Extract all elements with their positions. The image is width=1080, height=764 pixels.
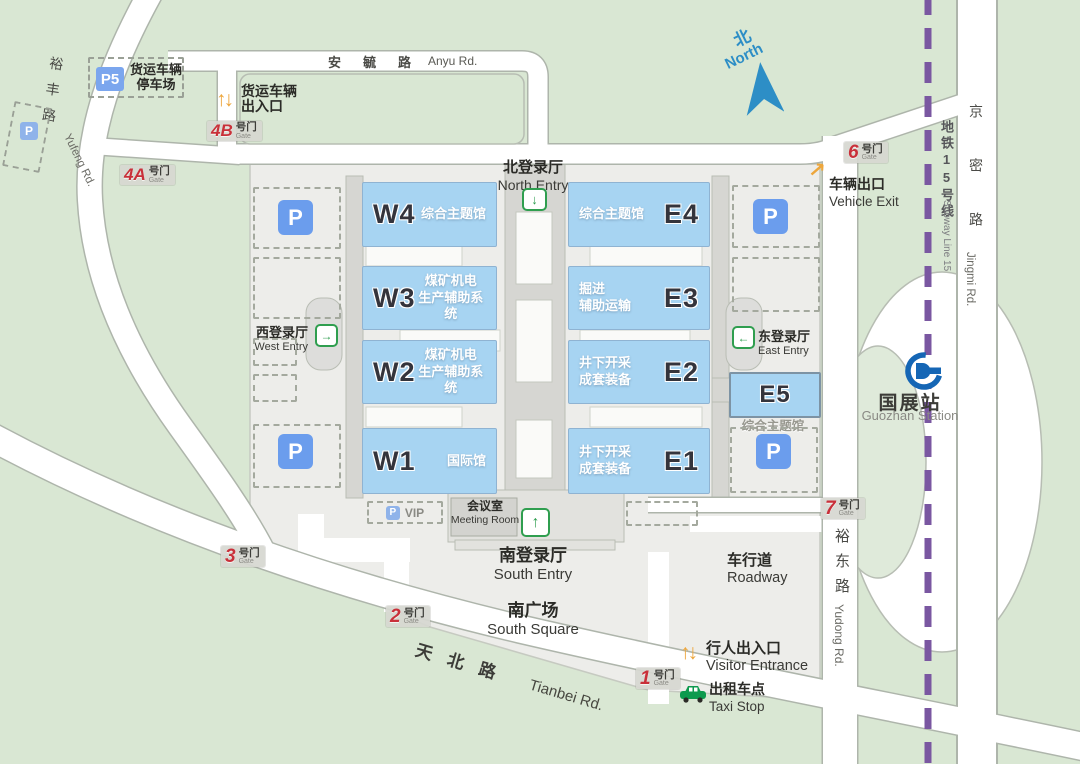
gate-badge-4a[interactable]: 4A 号门Gate [120,165,175,185]
hall-e3[interactable]: 掘进辅助运输 E3 [568,266,710,330]
hall-e2[interactable]: 井下开采成套装备 E2 [568,340,710,404]
hall-e5[interactable]: E5 [729,372,821,418]
hall-w4[interactable]: W4 综合主题馆 [362,182,497,247]
hall-e4[interactable]: 综合主题馆 E4 [568,182,710,247]
road-label-jingmi-zh: 京密路 [966,104,986,266]
meeting-room-label: 会议室 Meeting Room [444,500,526,526]
gate-badge-1[interactable]: 1 号门Gate [636,668,680,689]
exhibition-center-map: 安毓路 Anyu Rd. 裕丰路 Yufeng Rd. 天北路 Tianbei … [0,0,1080,764]
east-entry-icon[interactable]: ← [732,326,755,349]
parking-icon-east-top[interactable]: P [753,199,788,234]
subway-line-label-en: Subway Line 15 [941,200,952,271]
hall-w1[interactable]: W1 国际馆 [362,428,497,494]
freight-gate-label: 货运车辆 出入口 [241,84,311,115]
parking-icon-west-bottom[interactable]: P [278,434,313,469]
east-entry-label: 东登录厅 East Entry [758,326,838,357]
vehicle-exit-label: 车辆出口 Vehicle Exit [829,174,939,209]
south-entry-label: 南登录厅 South Entry [468,541,598,583]
road-label-yudong-zh: 裕东路 [831,528,852,603]
taxi-stop-label: 出租车点 Taxi Stop [709,679,799,714]
parking-lot-west-small-2 [253,374,297,402]
north-arrow-icon [742,62,784,116]
station-name-en: Guozhan Station [845,408,975,423]
gate-badge-7[interactable]: 7 号门Gate [821,498,865,519]
parking-lot-west-small-1 [253,338,297,366]
parking-icon-roadside[interactable]: P [20,122,38,140]
road-label-jingmi-en: Jingmi Rd. [964,252,976,306]
roadway-label: 车行道 Roadway [727,549,827,586]
road-label-yudong-en: Yudong Rd. [832,604,846,667]
vip-parking-lot: P VIP [367,501,443,524]
visitor-entrance-label: 行人出入口 Visitor Entrance [706,637,826,674]
lot-south-east-strip [626,501,698,526]
gate-badge-4b[interactable]: 4B 号门Gate [207,121,262,141]
gate-badge-2[interactable]: 2 号门Gate [386,606,430,627]
parking-icon-e5[interactable]: P [756,434,791,469]
visitor-entrance-arrows-icon: ↑↓ [680,641,695,665]
hall-w2[interactable]: W2 煤矿机电生产辅助系统 [362,340,497,404]
beijing-subway-logo-icon[interactable] [903,350,945,392]
parking-lot-east-mid [732,257,820,312]
vehicle-exit-arrow-icon: ↗ [807,158,823,184]
hall-w3[interactable]: W3 煤矿机电生产辅助系统 [362,266,497,330]
south-square-label: 南广场 South Square [478,596,588,638]
freight-parking-label: 货运车辆 停车场 [126,63,186,93]
road-label-anyu-en: Anyu Rd. [428,54,477,68]
freight-parking-p5-icon[interactable]: P5 [96,67,124,91]
parking-lot-west-mid [253,257,341,319]
taxi-icon [680,684,706,703]
west-entry-icon[interactable]: → [315,324,338,347]
hall-e1[interactable]: 井下开采成套装备 E1 [568,428,710,494]
gate-badge-6[interactable]: 6 号门Gate [844,142,888,163]
road-label-anyu-zh: 安毓路 [328,52,433,71]
north-entry-icon[interactable]: ↓ [522,188,547,211]
parking-icon-west-top[interactable]: P [278,200,313,235]
gate-badge-3[interactable]: 3 号门Gate [221,546,265,567]
vip-parking-icon: P [386,506,400,520]
vip-label: VIP [405,506,424,520]
freight-gate-arrows-icon: ↑↓ [216,88,231,112]
